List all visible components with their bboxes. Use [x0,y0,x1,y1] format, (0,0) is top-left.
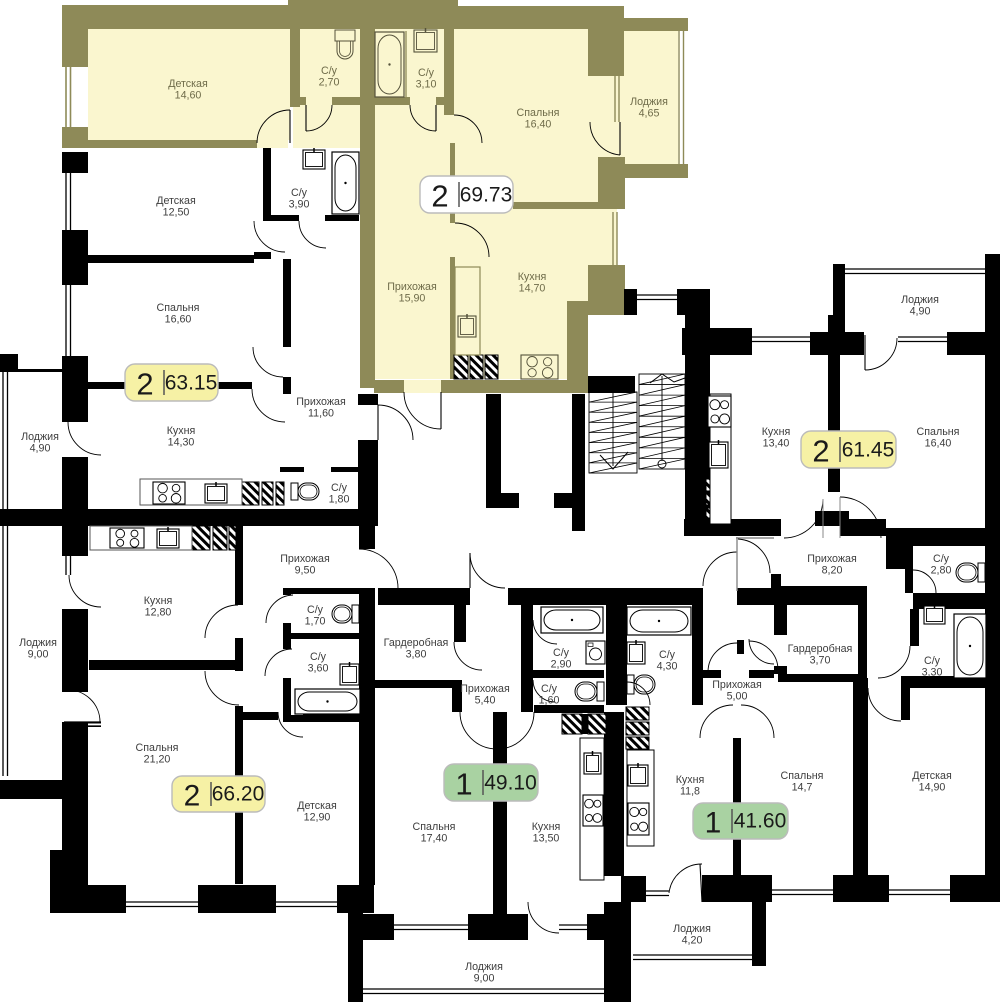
svg-text:2,70: 2,70 [319,77,340,89]
svg-text:5,00: 5,00 [727,691,748,703]
svg-text:С/у: С/у [291,187,308,199]
svg-text:2,80: 2,80 [931,565,952,577]
svg-text:2: 2 [812,434,829,469]
svg-text:1: 1 [705,807,722,840]
svg-text:Прихожая: Прихожая [387,281,437,293]
svg-text:12,80: 12,80 [145,607,172,619]
svg-text:Прихожая: Прихожая [712,679,762,691]
svg-text:9,00: 9,00 [474,973,495,985]
svg-text:Кухня: Кухня [167,425,196,437]
svg-text:Кухня: Кухня [676,774,705,786]
svg-text:13,50: 13,50 [533,833,560,845]
svg-text:С/у: С/у [924,655,941,667]
svg-text:3,70: 3,70 [810,655,831,667]
svg-text:Спальня: Спальня [517,107,560,119]
svg-text:14,30: 14,30 [168,437,195,449]
svg-text:14,7: 14,7 [792,782,813,794]
svg-text:11,8: 11,8 [680,786,700,798]
svg-text:1,70: 1,70 [305,616,326,628]
svg-text:4,90: 4,90 [30,443,51,455]
svg-text:Спальня: Спальня [157,302,200,314]
svg-text:С/у: С/у [933,553,950,565]
svg-text:69.73: 69.73 [460,184,513,207]
svg-text:С/у: С/у [659,649,676,661]
svg-text:Спальня: Спальня [136,742,179,754]
svg-text:2,90: 2,90 [551,659,572,671]
svg-text:9,00: 9,00 [28,649,49,661]
svg-text:2: 2 [184,780,201,813]
svg-text:16,60: 16,60 [165,314,192,326]
svg-text:3,10: 3,10 [416,79,437,91]
svg-text:9,50: 9,50 [295,565,316,577]
svg-text:12,90: 12,90 [304,812,331,824]
svg-text:Детская: Детская [912,770,952,782]
svg-text:Гардеробная: Гардеробная [788,643,853,655]
svg-text:С/у: С/у [541,683,558,695]
svg-text:1,80: 1,80 [329,494,350,506]
svg-text:3,90: 3,90 [289,199,310,211]
svg-text:Прихожая: Прихожая [807,553,857,565]
svg-text:С/у: С/у [553,647,570,659]
svg-text:Лоджия: Лоджия [465,961,503,973]
svg-text:17,40: 17,40 [421,833,448,845]
svg-text:Лоджия: Лоджия [19,637,57,649]
svg-text:Детская: Детская [168,78,208,90]
svg-text:С/у: С/у [307,604,324,616]
svg-text:14,70: 14,70 [519,283,546,295]
svg-text:Прихожая: Прихожая [460,683,510,695]
svg-text:3,30: 3,30 [922,667,943,679]
svg-text:Кухня: Кухня [144,595,173,607]
svg-text:Спальня: Спальня [413,821,456,833]
svg-text:3,60: 3,60 [308,663,329,675]
svg-text:15,90: 15,90 [399,293,426,305]
svg-text:63.15: 63.15 [165,372,218,395]
svg-text:13,40: 13,40 [763,438,790,450]
svg-text:Кухня: Кухня [762,426,791,438]
svg-text:Гардеробная: Гардеробная [384,637,449,649]
svg-text:4,20: 4,20 [682,935,703,947]
svg-text:4,90: 4,90 [910,306,931,318]
svg-text:Спальня: Спальня [917,426,960,438]
svg-text:1,60: 1,60 [539,695,560,707]
svg-text:Лоджия: Лоджия [630,96,668,108]
svg-text:5,40: 5,40 [475,695,496,707]
svg-text:Кухня: Кухня [532,821,561,833]
svg-text:Лоджия: Лоджия [21,431,59,443]
svg-text:11,60: 11,60 [308,408,334,420]
svg-text:Кухня: Кухня [518,271,547,283]
svg-text:49.10: 49.10 [484,772,537,795]
svg-text:3,80: 3,80 [406,649,427,661]
svg-text:С/у: С/у [310,651,327,663]
svg-text:С/у: С/у [331,482,348,494]
svg-text:16,40: 16,40 [925,438,952,450]
svg-text:Лоджия: Лоджия [673,923,711,935]
svg-text:Детская: Детская [156,195,196,207]
svg-text:12,50: 12,50 [163,207,190,219]
svg-text:21,20: 21,20 [144,754,171,766]
svg-text:66.20: 66.20 [212,783,265,806]
svg-text:Прихожая: Прихожая [280,553,330,565]
svg-text:16,40: 16,40 [525,119,552,131]
svg-text:Лоджия: Лоджия [901,294,939,306]
svg-text:14,60: 14,60 [175,90,202,102]
svg-text:61.45: 61.45 [842,439,895,462]
svg-text:С/у: С/у [418,67,435,79]
svg-text:Прихожая: Прихожая [296,396,346,408]
svg-text:Спальня: Спальня [781,770,824,782]
svg-text:2: 2 [136,367,153,402]
svg-text:14,90: 14,90 [919,782,946,794]
svg-text:4,30: 4,30 [657,661,678,673]
svg-text:2: 2 [431,179,448,214]
svg-text:Детская: Детская [297,800,337,812]
svg-text:1: 1 [455,767,472,802]
svg-text:41.60: 41.60 [734,810,787,833]
svg-text:4,65: 4,65 [639,108,660,120]
svg-text:8,20: 8,20 [822,565,843,577]
svg-text:С/у: С/у [321,65,338,77]
